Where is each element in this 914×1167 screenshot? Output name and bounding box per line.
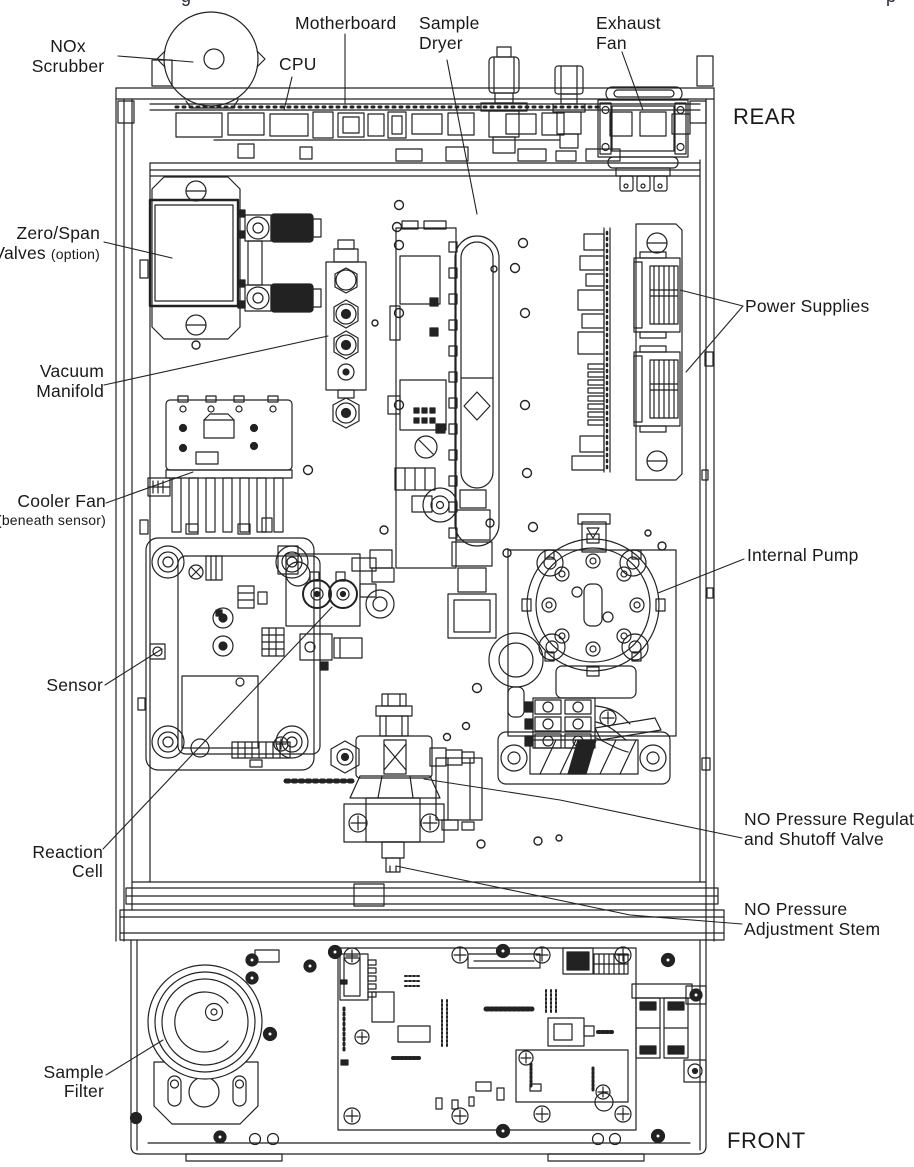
label-line: Sample <box>419 13 480 33</box>
label-line: Adjustment Stem <box>744 919 880 939</box>
label-line: Filter <box>38 1082 104 1101</box>
label-exhaust-fan: Exhaust Fan <box>596 13 661 53</box>
reaction-cell-drawing <box>278 546 394 670</box>
bulkhead-fittings-drawing <box>481 47 585 153</box>
label-sample-dryer: Sample Dryer <box>419 13 480 53</box>
cooler-fan-drawing <box>148 396 292 534</box>
leader-zero-span-valves <box>104 242 172 258</box>
label-power-supplies: Power Supplies <box>745 296 869 316</box>
power-supplies-drawing <box>572 224 682 480</box>
label-line: Valves (option) <box>0 243 100 264</box>
leader-cpu <box>284 77 292 110</box>
internal-layout-diagram: g p NOx Scrubber CPU Motherboard Sample … <box>0 0 914 1167</box>
label-line: and Shutoff Valve <box>744 829 914 849</box>
sample-filter-drawing <box>148 965 262 1124</box>
caption-fragment-left: g <box>181 0 201 9</box>
label-front: FRONT <box>727 1129 806 1153</box>
leader-power-supplies-upper <box>680 290 743 306</box>
label-nox-scrubber: NOx Scrubber <box>16 36 120 76</box>
leader-no-pressure-regulator <box>424 779 742 838</box>
label-no-pressure-adjustment: NO Pressure Adjustment Stem <box>744 899 880 939</box>
vacuum-manifold-drawing <box>326 240 366 428</box>
label-motherboard: Motherboard <box>295 13 396 33</box>
leader-no-pressure-adjustment <box>396 866 742 924</box>
label-line: Power Supplies <box>745 296 869 316</box>
sensor-drawing <box>146 538 320 770</box>
leader-vacuum-manifold <box>104 336 328 385</box>
label-sample-filter: Sample Filter <box>38 1063 104 1101</box>
label-line: Sensor <box>35 675 103 695</box>
label-line: Cooler Fan <box>0 492 106 511</box>
label-line: Reaction <box>20 843 103 862</box>
label-cooler-fan: Cooler Fan (beneath sensor) <box>0 492 106 530</box>
motherboard-drawing <box>150 104 700 161</box>
leader-sample-dryer <box>447 60 477 214</box>
label-line: Motherboard <box>295 13 396 33</box>
label-line: Zero/Span <box>0 223 100 243</box>
label-line: Internal Pump <box>747 545 859 565</box>
label-line: NO Pressure <box>744 899 880 919</box>
leader-exhaust-fan <box>622 52 643 110</box>
label-line: NO Pressure Regulat <box>744 809 914 829</box>
label-line: Fan <box>596 33 661 53</box>
leader-reaction-cell <box>103 607 332 849</box>
label-line: Exhaust <box>596 13 661 33</box>
label-line: NOx <box>16 36 120 56</box>
label-line: CPU <box>279 54 317 74</box>
label-line: (beneath sensor) <box>0 511 106 530</box>
leader-nox-scrubber <box>118 56 193 62</box>
front-pcb-drawing <box>338 948 636 1130</box>
label-reaction-cell: Reaction Cell <box>20 843 103 881</box>
label-no-pressure-regulator: NO Pressure Regulat and Shutoff Valve <box>744 809 914 849</box>
label-line: Sample <box>38 1063 104 1082</box>
label-internal-pump: Internal Pump <box>747 545 859 565</box>
caption-fragment-right: p <box>886 0 906 9</box>
leader-sensor <box>105 649 162 685</box>
label-line: Dryer <box>419 33 480 53</box>
label-sensor: Sensor <box>35 675 103 695</box>
leader-internal-pump <box>658 559 744 593</box>
leader-lines <box>103 34 744 1075</box>
label-zero-span-valves: Zero/Span Valves (option) <box>0 223 100 264</box>
internal-pump-drawing <box>489 514 676 784</box>
diagram-canvas <box>0 0 914 1167</box>
label-line: Cell <box>20 862 103 881</box>
label-cpu: CPU <box>279 54 317 74</box>
label-vacuum-manifold: Vacuum Manifold <box>0 361 104 401</box>
label-line: Manifold <box>0 381 104 401</box>
sample-dryer-drawing <box>388 221 499 638</box>
label-rear: REAR <box>733 105 797 129</box>
label-line: Scrubber <box>16 56 120 76</box>
label-line: Vacuum <box>0 361 104 381</box>
zero-span-valves-drawing <box>150 177 321 339</box>
